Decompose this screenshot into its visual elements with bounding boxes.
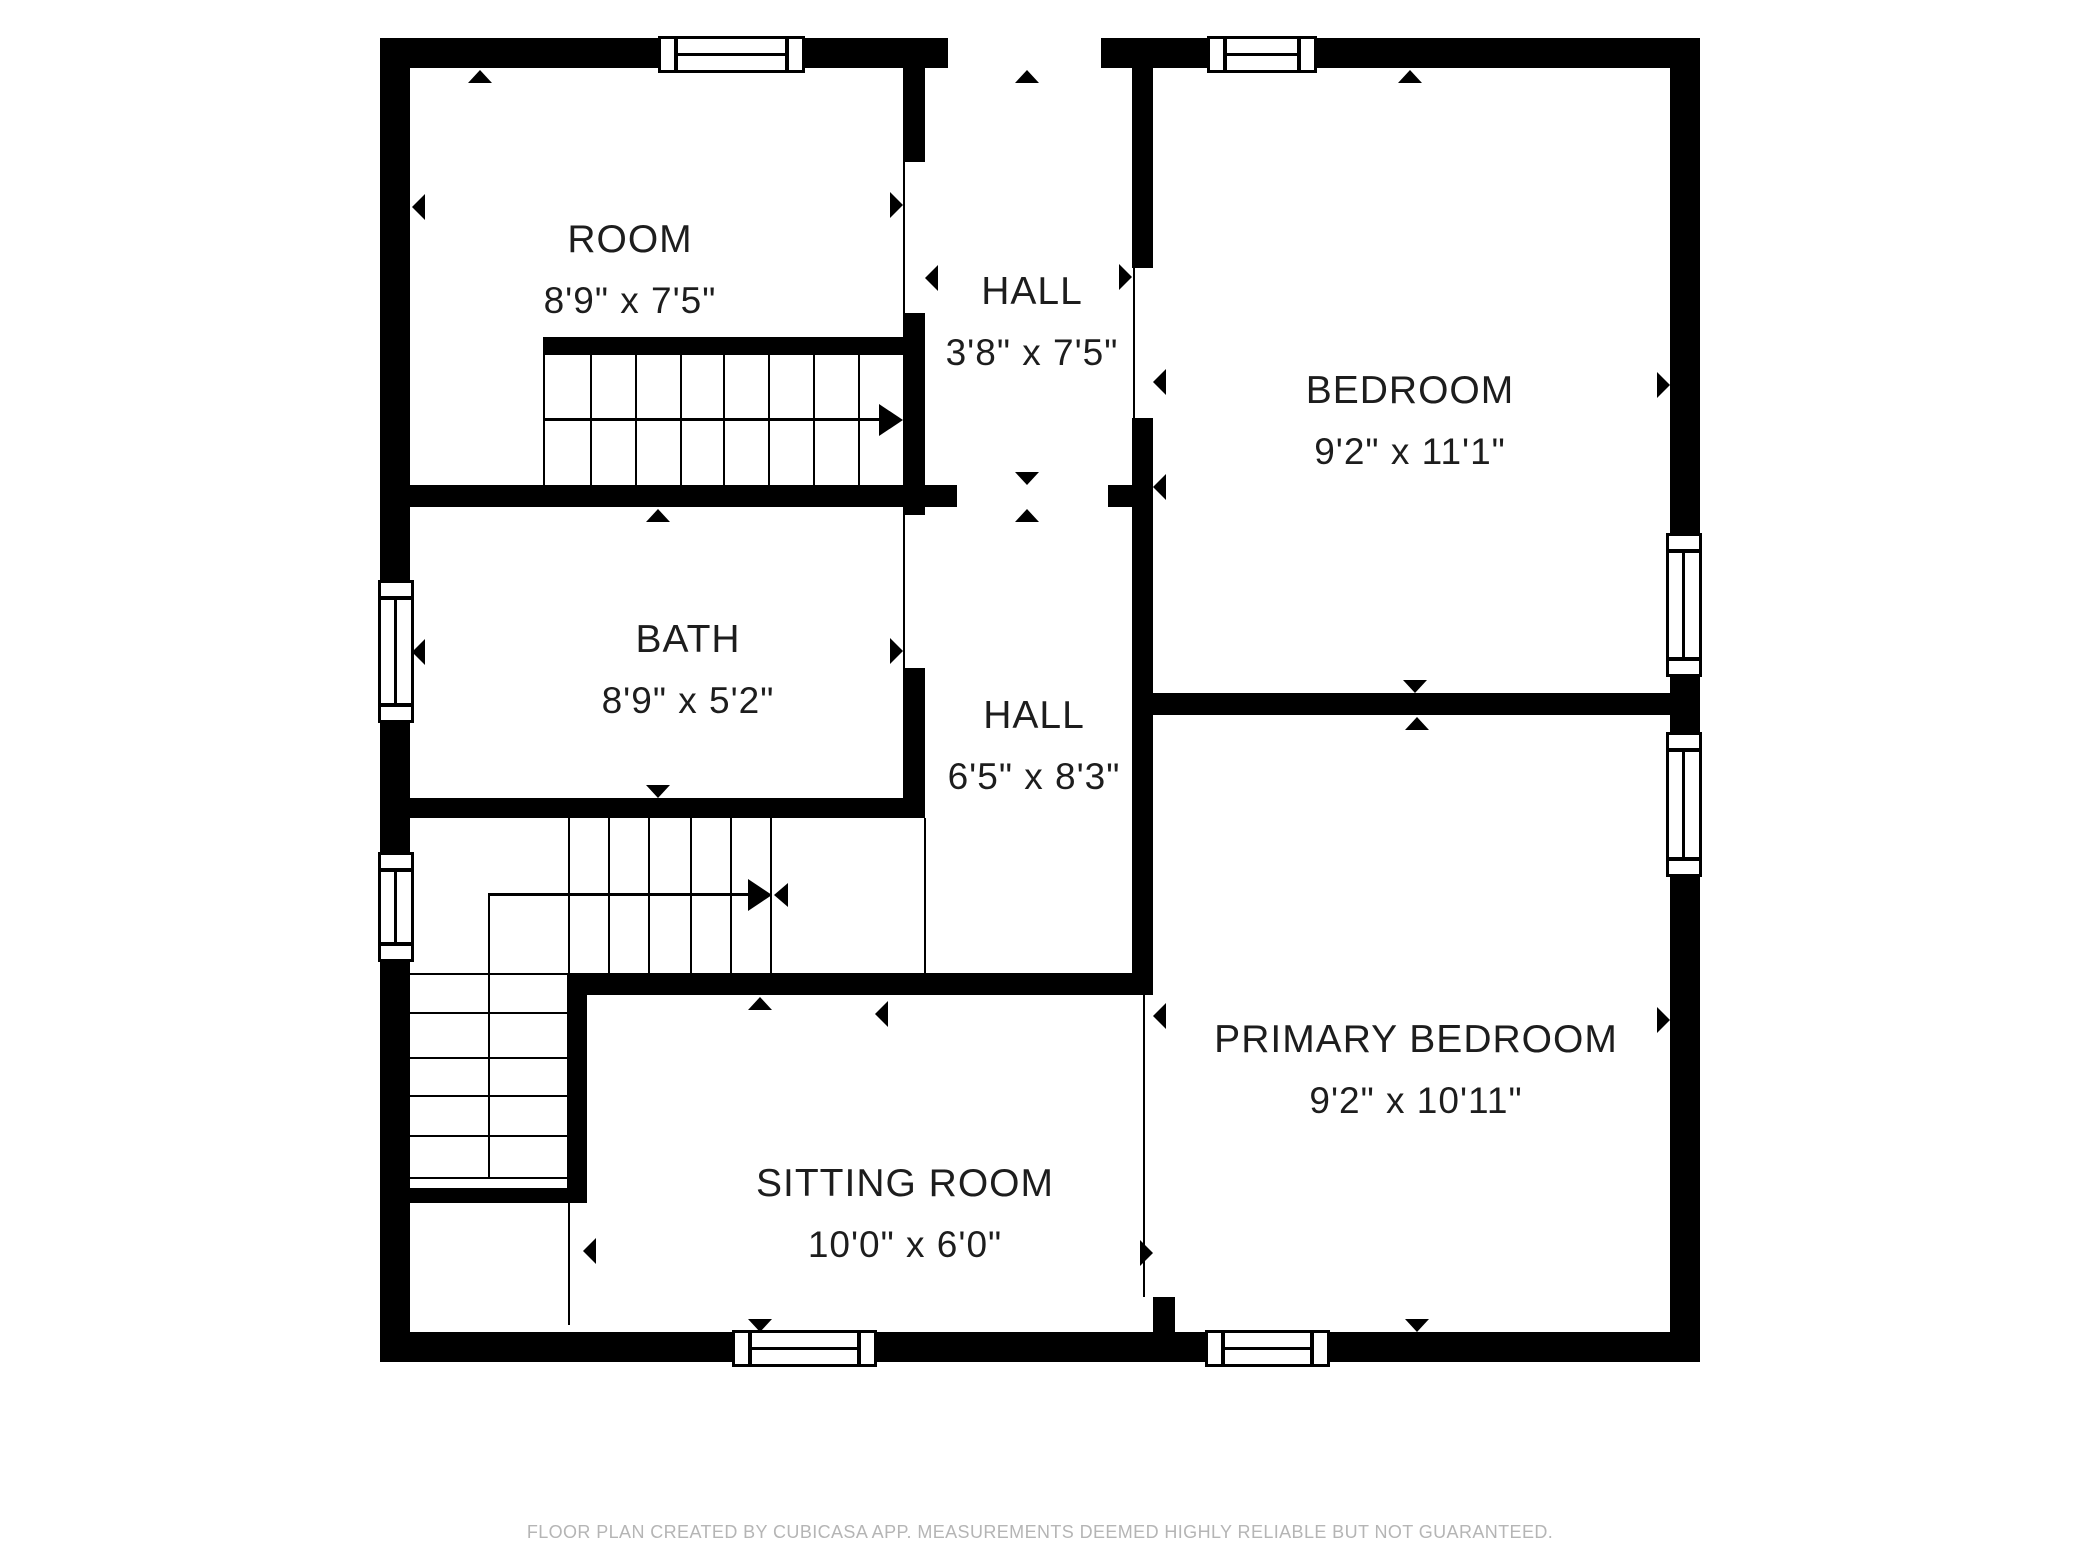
marker-room-top [468, 70, 492, 83]
marker-primary-top [1405, 717, 1429, 730]
marker-sitting-top [748, 997, 772, 1010]
window-bedroom-right [1666, 533, 1702, 677]
wall-hall-bedroom-mid [1132, 418, 1153, 693]
room-dimensions: 8'9" x 5'2" [602, 670, 775, 731]
door-line-bedroom [1133, 268, 1135, 418]
room-name: BEDROOM [1306, 360, 1515, 421]
stair-arrow-counter [774, 883, 788, 907]
stair-arrow-shaft-upper [543, 418, 883, 421]
window-pane-line [1223, 1347, 1312, 1350]
wall-bedroom-bottom [1132, 693, 1700, 715]
marker-room-left [412, 194, 425, 220]
marker-primary-bottom [1405, 1319, 1429, 1332]
room-dimensions: 6'5" x 8'3" [948, 746, 1121, 807]
stair-center-line [488, 973, 490, 1179]
window-pane-line [676, 53, 787, 56]
wall-sitting-top [567, 973, 1153, 995]
window-pane-line [750, 1347, 859, 1350]
top-wall-opening [948, 37, 1101, 69]
marker-primary-left [1153, 1003, 1166, 1029]
marker-sitting-bottom [748, 1319, 772, 1332]
label-hall-upper: HALL 3'8" x 7'5" [946, 261, 1119, 383]
window-pane-line [1682, 750, 1685, 859]
label-bath: BATH 8'9" x 5'2" [602, 609, 775, 731]
marker-bedroom-bottom [1403, 680, 1427, 693]
window-pane-line [1225, 53, 1299, 56]
label-room: ROOM 8'9" x 7'5" [544, 209, 717, 331]
marker-room-door [890, 192, 903, 218]
window-pane-line [394, 598, 397, 705]
room-dimensions: 8'9" x 7'5" [544, 270, 717, 331]
window-pane-line [1682, 551, 1685, 659]
room-name: ROOM [544, 209, 717, 270]
marker-hall-door [925, 265, 938, 291]
marker-primary-right [1657, 1007, 1670, 1033]
marker-bedroom-top [1398, 70, 1422, 83]
marker-hall-top [1015, 70, 1039, 83]
room-name: SITTING ROOM [756, 1153, 1054, 1214]
room-dimensions: 9'2" x 10'11" [1214, 1070, 1618, 1131]
wall-stairs-right [567, 973, 587, 1203]
window-primary-right [1666, 732, 1702, 877]
stair-arrow-shaft-middle [488, 893, 752, 896]
stair-arrow-head-upper [879, 404, 903, 436]
wall-sitting-primary-stub [1153, 1297, 1175, 1332]
marker-hall-passage-top [1015, 472, 1039, 485]
window-sitting-bottom [732, 1330, 877, 1367]
window-pane-line [394, 870, 397, 944]
wall-stairs-top-bar [543, 337, 925, 355]
marker-sitting-door [583, 1238, 596, 1264]
window-primary-bottom [1205, 1330, 1330, 1367]
window-bath-left [378, 580, 414, 723]
wall-bottom [380, 1332, 1700, 1362]
wall-room-hall-upper [903, 68, 925, 162]
stair-arrow-head-middle [748, 879, 772, 911]
room-dimensions: 10'0" x 6'0" [756, 1214, 1054, 1275]
label-hall-middle: HALL 6'5" x 8'3" [948, 685, 1121, 807]
wall-bath-bottom [380, 798, 925, 818]
room-name: HALL [948, 685, 1121, 746]
room-name: BATH [602, 609, 775, 670]
label-bedroom: BEDROOM 9'2" x 11'1" [1306, 360, 1515, 482]
wall-hall-bedroom-upper [1132, 68, 1153, 268]
window-stairs-left [378, 852, 414, 962]
marker-bath-bottom [646, 785, 670, 798]
label-primary-bedroom: PRIMARY BEDROOM 9'2" x 10'11" [1214, 1009, 1618, 1131]
marker-bath-left [412, 639, 425, 665]
marker-bedroom-door-hall-side [1119, 264, 1132, 290]
room-dimensions: 9'2" x 11'1" [1306, 421, 1515, 482]
room-dimensions: 3'8" x 7'5" [946, 322, 1119, 383]
window-bedroom-top [1207, 36, 1317, 73]
wall-room-hall-lower [903, 668, 925, 818]
label-sitting-room: SITTING ROOM 10'0" x 6'0" [756, 1153, 1054, 1275]
door-line-sitting [568, 1203, 570, 1325]
marker-bath-door [890, 638, 903, 664]
marker-bedroom-door-bedroom-side [1153, 369, 1166, 395]
door-line-bath [903, 515, 905, 668]
footer-disclaimer: FLOOR PLAN CREATED BY CUBICASA APP. MEAS… [0, 1522, 2080, 1543]
wall-bath-top [380, 485, 957, 507]
door-line-room [903, 162, 905, 313]
room-name: PRIMARY BEDROOM [1214, 1009, 1618, 1070]
marker-hall-passage-bottom [1015, 509, 1039, 522]
marker-sitting-right [1140, 1240, 1153, 1266]
window-room-top [658, 36, 805, 73]
room-name: HALL [946, 261, 1119, 322]
marker-sitting-top-left [875, 1001, 888, 1027]
marker-bedroom-left [1153, 474, 1166, 500]
floorplan-page: ROOM 8'9" x 7'5" HALL 3'8" x 7'5" BEDROO… [0, 0, 2080, 1560]
stair-turn-line [488, 893, 490, 975]
marker-bath-top [646, 509, 670, 522]
wall-hall-primary [1132, 715, 1153, 995]
boundary-hall-stairs [924, 818, 926, 973]
wall-stairs-bottom-bar [408, 1188, 587, 1203]
marker-bedroom-right [1657, 372, 1670, 398]
